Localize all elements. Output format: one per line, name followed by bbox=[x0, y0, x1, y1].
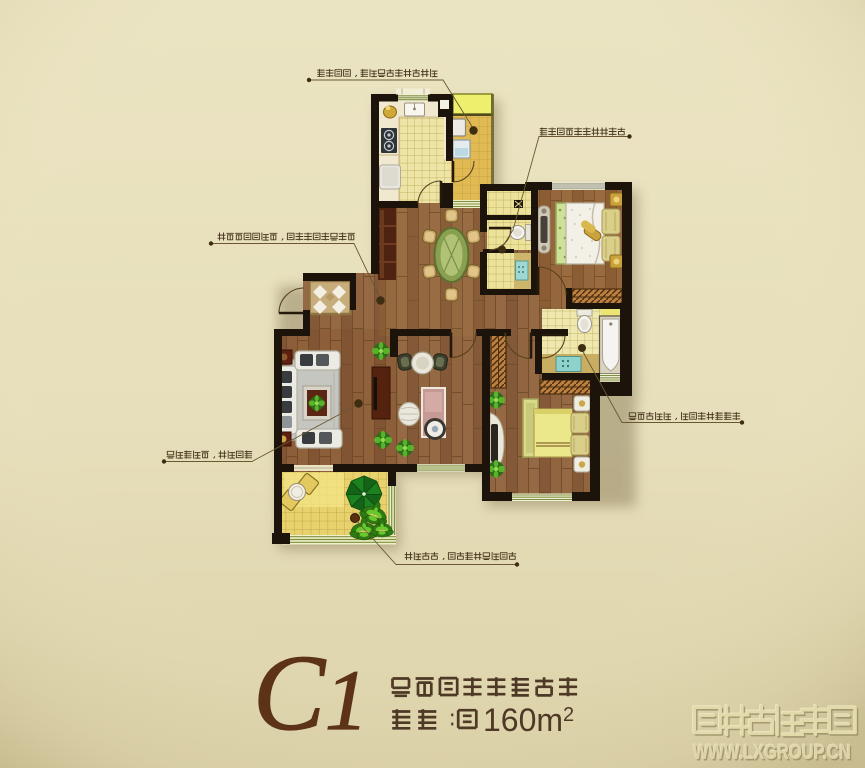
svg-text:WWW.LXGROUP.CN: WWW.LXGROUP.CN bbox=[693, 740, 851, 764]
svg-text:C1: C1 bbox=[253, 634, 368, 753]
svg-text:160m2: 160m2 bbox=[483, 702, 574, 738]
